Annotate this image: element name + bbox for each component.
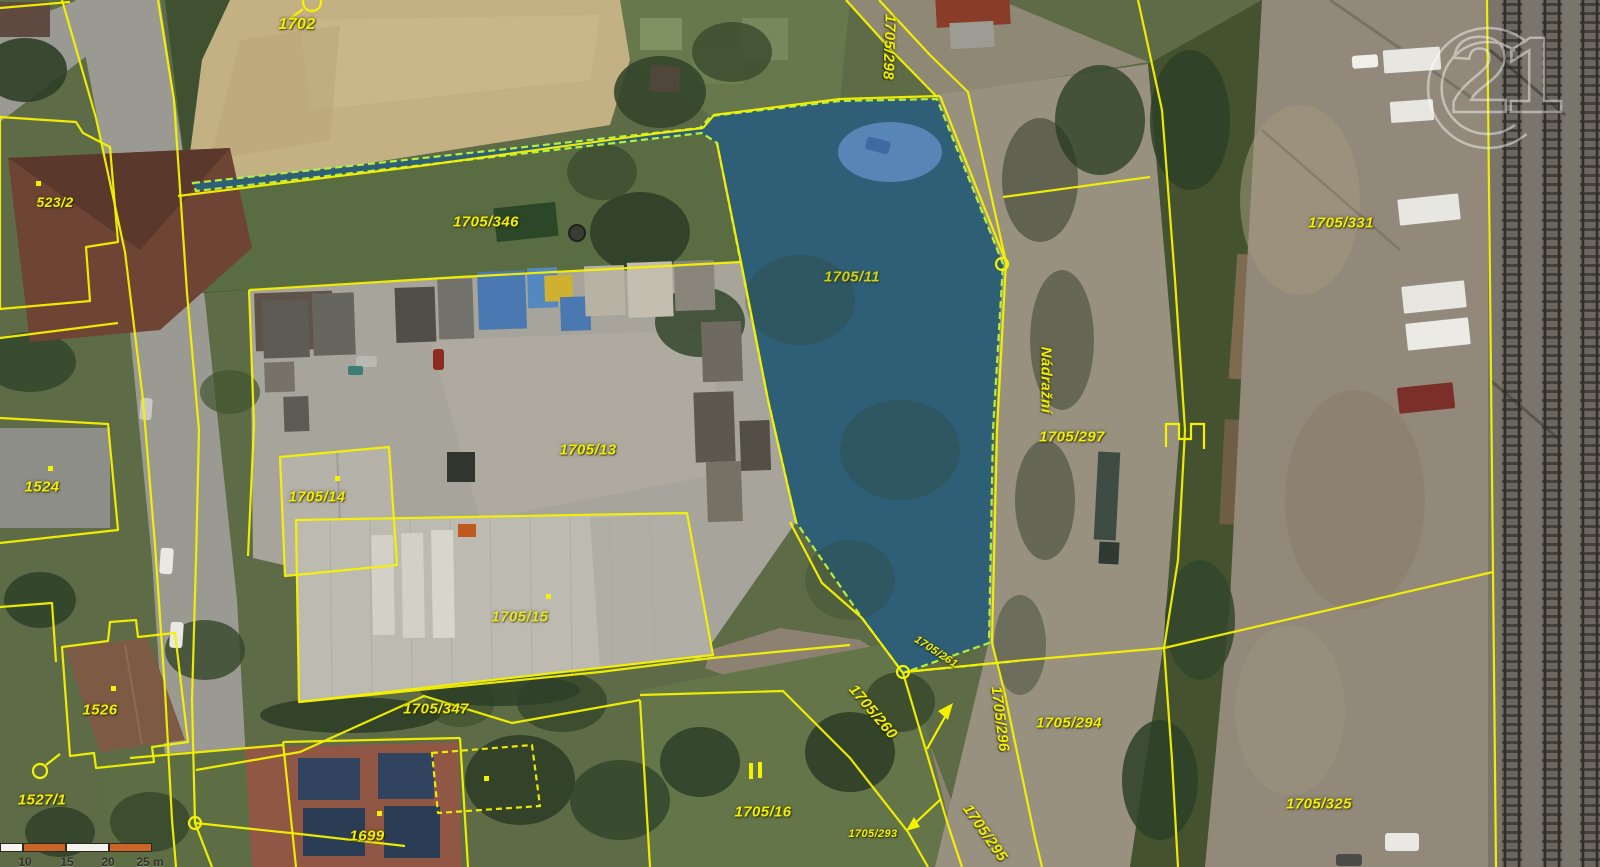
parcel-label-1705-346: 1705/346 xyxy=(453,214,519,231)
scale-bar-segment-0 xyxy=(0,843,23,852)
scale-bar-label-20: 20 xyxy=(101,855,114,867)
parcel-label-523-2: 523/2 xyxy=(36,194,73,210)
scale-bar: 10152025 m xyxy=(0,843,200,867)
parcel-label-1705-297: 1705/297 xyxy=(1039,429,1105,446)
parcel-label-1705-16: 1705/16 xyxy=(734,804,791,821)
centroid-dot xyxy=(36,181,41,186)
centroid-dot xyxy=(377,811,382,816)
parcel-label-1526: 1526 xyxy=(83,702,118,719)
parcel-label-1705-325: 1705/325 xyxy=(1286,796,1352,813)
centroid-dot xyxy=(335,476,340,481)
parcel-label-1702: 1702 xyxy=(278,16,315,34)
parcel-label-1705-298: 1705/298 xyxy=(879,14,898,80)
parcel-label-1705-11: 1705/11 xyxy=(824,269,880,286)
landuse-symbol xyxy=(749,763,753,779)
cadastral-map[interactable]: 21 1702523/21705/3461705/2981705/11Nádra… xyxy=(0,0,1600,867)
scale-bar-label-15: 15 xyxy=(60,855,73,867)
centroid-dot xyxy=(484,776,489,781)
parcel-label-1705-293: 1705/293 xyxy=(848,828,897,840)
parcel-label-1705-347: 1705/347 xyxy=(403,701,469,718)
scale-bar-segment-2 xyxy=(66,843,109,852)
centroid-dot xyxy=(546,594,551,599)
scale-bar-segment-1 xyxy=(23,843,66,852)
scale-bar-label-10: 10 xyxy=(18,855,31,867)
watermark-21-text: 21 xyxy=(1450,14,1562,135)
scale-bar-label-25-m: 25 m xyxy=(136,855,163,867)
parcel-label-1705-294: 1705/294 xyxy=(1036,715,1102,732)
street-label-n-dra-n-: Nádražní xyxy=(1038,347,1055,414)
parcel-label-1705-331: 1705/331 xyxy=(1308,215,1374,232)
parcel-label-1705-15: 1705/15 xyxy=(491,609,548,626)
parcel-label-1705-13: 1705/13 xyxy=(559,442,616,459)
centroid-dot xyxy=(48,466,53,471)
parcel-label-1705-14: 1705/14 xyxy=(288,489,345,506)
scale-bar-segment-3 xyxy=(109,843,152,852)
parcel-label-1527-1: 1527/1 xyxy=(18,792,66,809)
parcel-label-1699: 1699 xyxy=(350,828,385,845)
centroid-dot xyxy=(111,686,116,691)
parcel-label-1524: 1524 xyxy=(25,479,60,496)
aerial-map-canvas[interactable]: 21 xyxy=(0,0,1600,867)
